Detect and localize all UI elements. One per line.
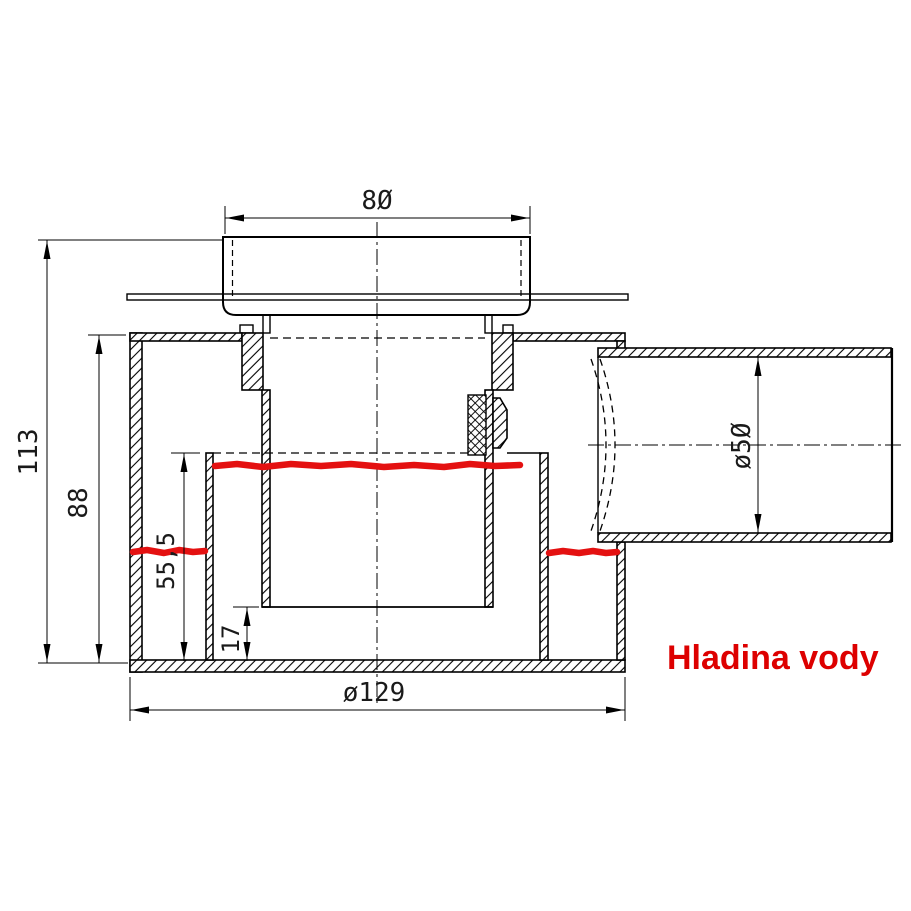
dim-sump-depth-label: 17 [217,625,245,654]
water-level-line-right [549,551,617,553]
arrowhead-top [96,336,103,354]
arrowhead-bottom [755,514,762,532]
dim-outlet-diameter-label: ø5Ø [727,422,757,469]
collar-left-block [242,333,263,390]
dim-sump-depth: 17 [217,607,259,661]
dim-total-height-label: 113 [14,429,44,476]
body-right-wall [617,542,625,660]
dip-tube-wall-left [262,390,270,607]
retaining-clip-left [240,325,253,333]
arrowhead-bottom [181,642,188,660]
water-level-line-inner [215,464,520,467]
dim-body-height: 88 [64,335,126,663]
gasket-cross-section [468,395,486,455]
siphon-cup-wall-right [540,453,548,660]
arrowhead-top [181,454,188,472]
body-top-wall-right [513,333,625,341]
retaining-clip-right [503,325,513,333]
pipe-bottom-wall [598,533,891,542]
dim-flange-diameter-label: ø129 [343,678,406,708]
arrowhead-top [755,358,762,376]
arrowhead-right [511,215,529,222]
arrowhead-left [131,707,149,714]
dim-water-depth: 55,5 [152,453,200,661]
gasket-wedge [493,398,507,448]
dim-grate-width-label: 8Ø [361,186,393,216]
arrowhead-top [244,608,251,626]
arrowhead-top [44,241,51,259]
body-top-wall-left [130,333,242,341]
dim-flange-diameter: ø129 [130,677,625,721]
dim-body-height-label: 88 [64,487,94,518]
arrowhead-left [226,215,244,222]
funnel-mouth-wall-left [263,315,270,333]
technical-drawing-canvas: Hladina vody 8Ø 113 88 55,5 [0,0,911,911]
arrowhead-right [606,707,624,714]
dim-total-height: 113 [14,240,222,663]
funnel-mouth-wall-right [485,315,492,333]
water-level-label: Hladina vody [667,639,879,677]
arrowhead-bottom [96,644,103,662]
siphon-cup-wall-left [206,453,213,660]
arrowhead-bottom [44,644,51,662]
body-left-wall [130,333,142,672]
dim-outlet-diameter: ø5Ø [727,357,762,533]
pipe-top-wall [598,348,891,357]
dim-water-depth-label: 55,5 [152,532,180,590]
collar-right-block [492,333,513,390]
floor-drain-cross-section: Hladina vody 8Ø 113 88 55,5 [0,0,911,911]
